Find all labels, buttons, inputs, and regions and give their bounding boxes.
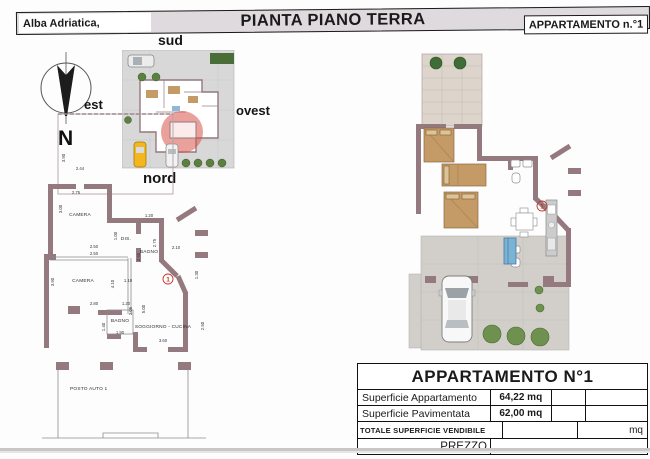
summary-table: APPARTAMENTO N°1 Superficie Appartamento…	[357, 363, 648, 455]
svg-text:2.80: 2.80	[90, 301, 99, 306]
svg-text:CAMERA: CAMERA	[72, 278, 94, 284]
empty-cell	[552, 390, 587, 405]
bed-icon	[146, 90, 158, 98]
table-row: Superficie Appartamento 64,22 mq	[358, 390, 647, 406]
empty-cell	[586, 406, 647, 421]
direction-label-ovest: ovest	[236, 103, 270, 118]
row-value: 64,22 mq	[491, 390, 552, 405]
svg-text:4.10: 4.10	[110, 279, 115, 288]
kitchen-counter-icon	[546, 200, 557, 256]
svg-text:1: 1	[540, 204, 544, 211]
empty-cell	[503, 422, 578, 438]
unit-number-badge: 1	[163, 274, 173, 284]
svg-text:1.40: 1.40	[101, 322, 106, 331]
svg-text:3.90: 3.90	[61, 153, 66, 162]
svg-text:1.90: 1.90	[116, 330, 125, 335]
svg-text:3.60: 3.60	[159, 338, 168, 343]
sofa-icon	[504, 238, 516, 264]
hedge	[210, 53, 234, 64]
car-icon-white	[439, 276, 475, 342]
svg-text:3.00: 3.00	[58, 204, 63, 213]
apartment-label: APPARTAMENTO n.°1	[524, 15, 648, 35]
bed-icon	[168, 86, 180, 94]
floor-plan-technical: 3.90 2.44	[28, 108, 213, 448]
svg-text:POSTO AUTO 1: POSTO AUTO 1	[70, 386, 108, 392]
svg-text:1.20: 1.20	[145, 213, 154, 218]
svg-text:1.20: 1.20	[122, 301, 131, 306]
summary-table-title: APPARTAMENTO N°1	[358, 364, 647, 390]
direction-label-sud: sud	[158, 32, 183, 48]
row-label: Superficie Pavimentata	[358, 406, 491, 421]
bed-icon	[188, 96, 198, 103]
table-row: Superficie Pavimentata 62,00 mq	[358, 406, 647, 422]
dining-table-icon	[511, 208, 537, 237]
table-row-total: TOTALE SUPERFICIE VENDIBILE mq	[358, 422, 647, 439]
svg-text:BAGNO: BAGNO	[111, 318, 129, 324]
svg-text:DIS.: DIS.	[121, 236, 131, 242]
total-label: TOTALE SUPERFICIE VENDIBILE	[358, 422, 503, 438]
svg-text:1.10: 1.10	[124, 278, 133, 283]
car-icon-white-top	[128, 55, 154, 67]
svg-text:3.60: 3.60	[136, 252, 141, 261]
row-label: Superficie Appartamento	[358, 390, 491, 405]
bed-icon	[442, 164, 486, 186]
svg-text:1.30: 1.30	[194, 270, 199, 279]
svg-text:3.90: 3.90	[50, 277, 55, 286]
empty-cell	[552, 406, 587, 421]
bed-icon	[444, 192, 478, 228]
scanned-floor-plan-page: Alba Adriatica, PIANTA PIANO TERRA APPAR…	[0, 0, 650, 459]
svg-text:2.44: 2.44	[76, 166, 85, 171]
svg-text:1: 1	[166, 277, 170, 284]
svg-text:SOGGIORNO - CUCINA: SOGGIORNO - CUCINA	[135, 324, 192, 330]
svg-text:2.75: 2.75	[72, 190, 81, 195]
total-unit: mq	[578, 422, 647, 438]
scan-shadow-line-light	[0, 451, 650, 453]
bed-icon	[424, 128, 454, 162]
svg-text:2.50: 2.50	[200, 321, 205, 330]
svg-text:2.50: 2.50	[90, 244, 99, 249]
svg-text:2.75: 2.75	[152, 238, 157, 247]
empty-cell	[586, 390, 647, 405]
svg-text:CAMERA: CAMERA	[69, 212, 91, 218]
svg-text:BAGNO: BAGNO	[140, 249, 158, 255]
svg-text:1.00: 1.00	[113, 231, 118, 240]
svg-text:2.10: 2.10	[172, 245, 181, 250]
floor-plan-rendered: 1	[408, 50, 593, 362]
svg-text:2.50: 2.50	[90, 251, 99, 256]
svg-text:2.05: 2.05	[128, 306, 133, 315]
row-value: 62,00 mq	[491, 406, 552, 421]
svg-text:5.00: 5.00	[141, 304, 146, 313]
